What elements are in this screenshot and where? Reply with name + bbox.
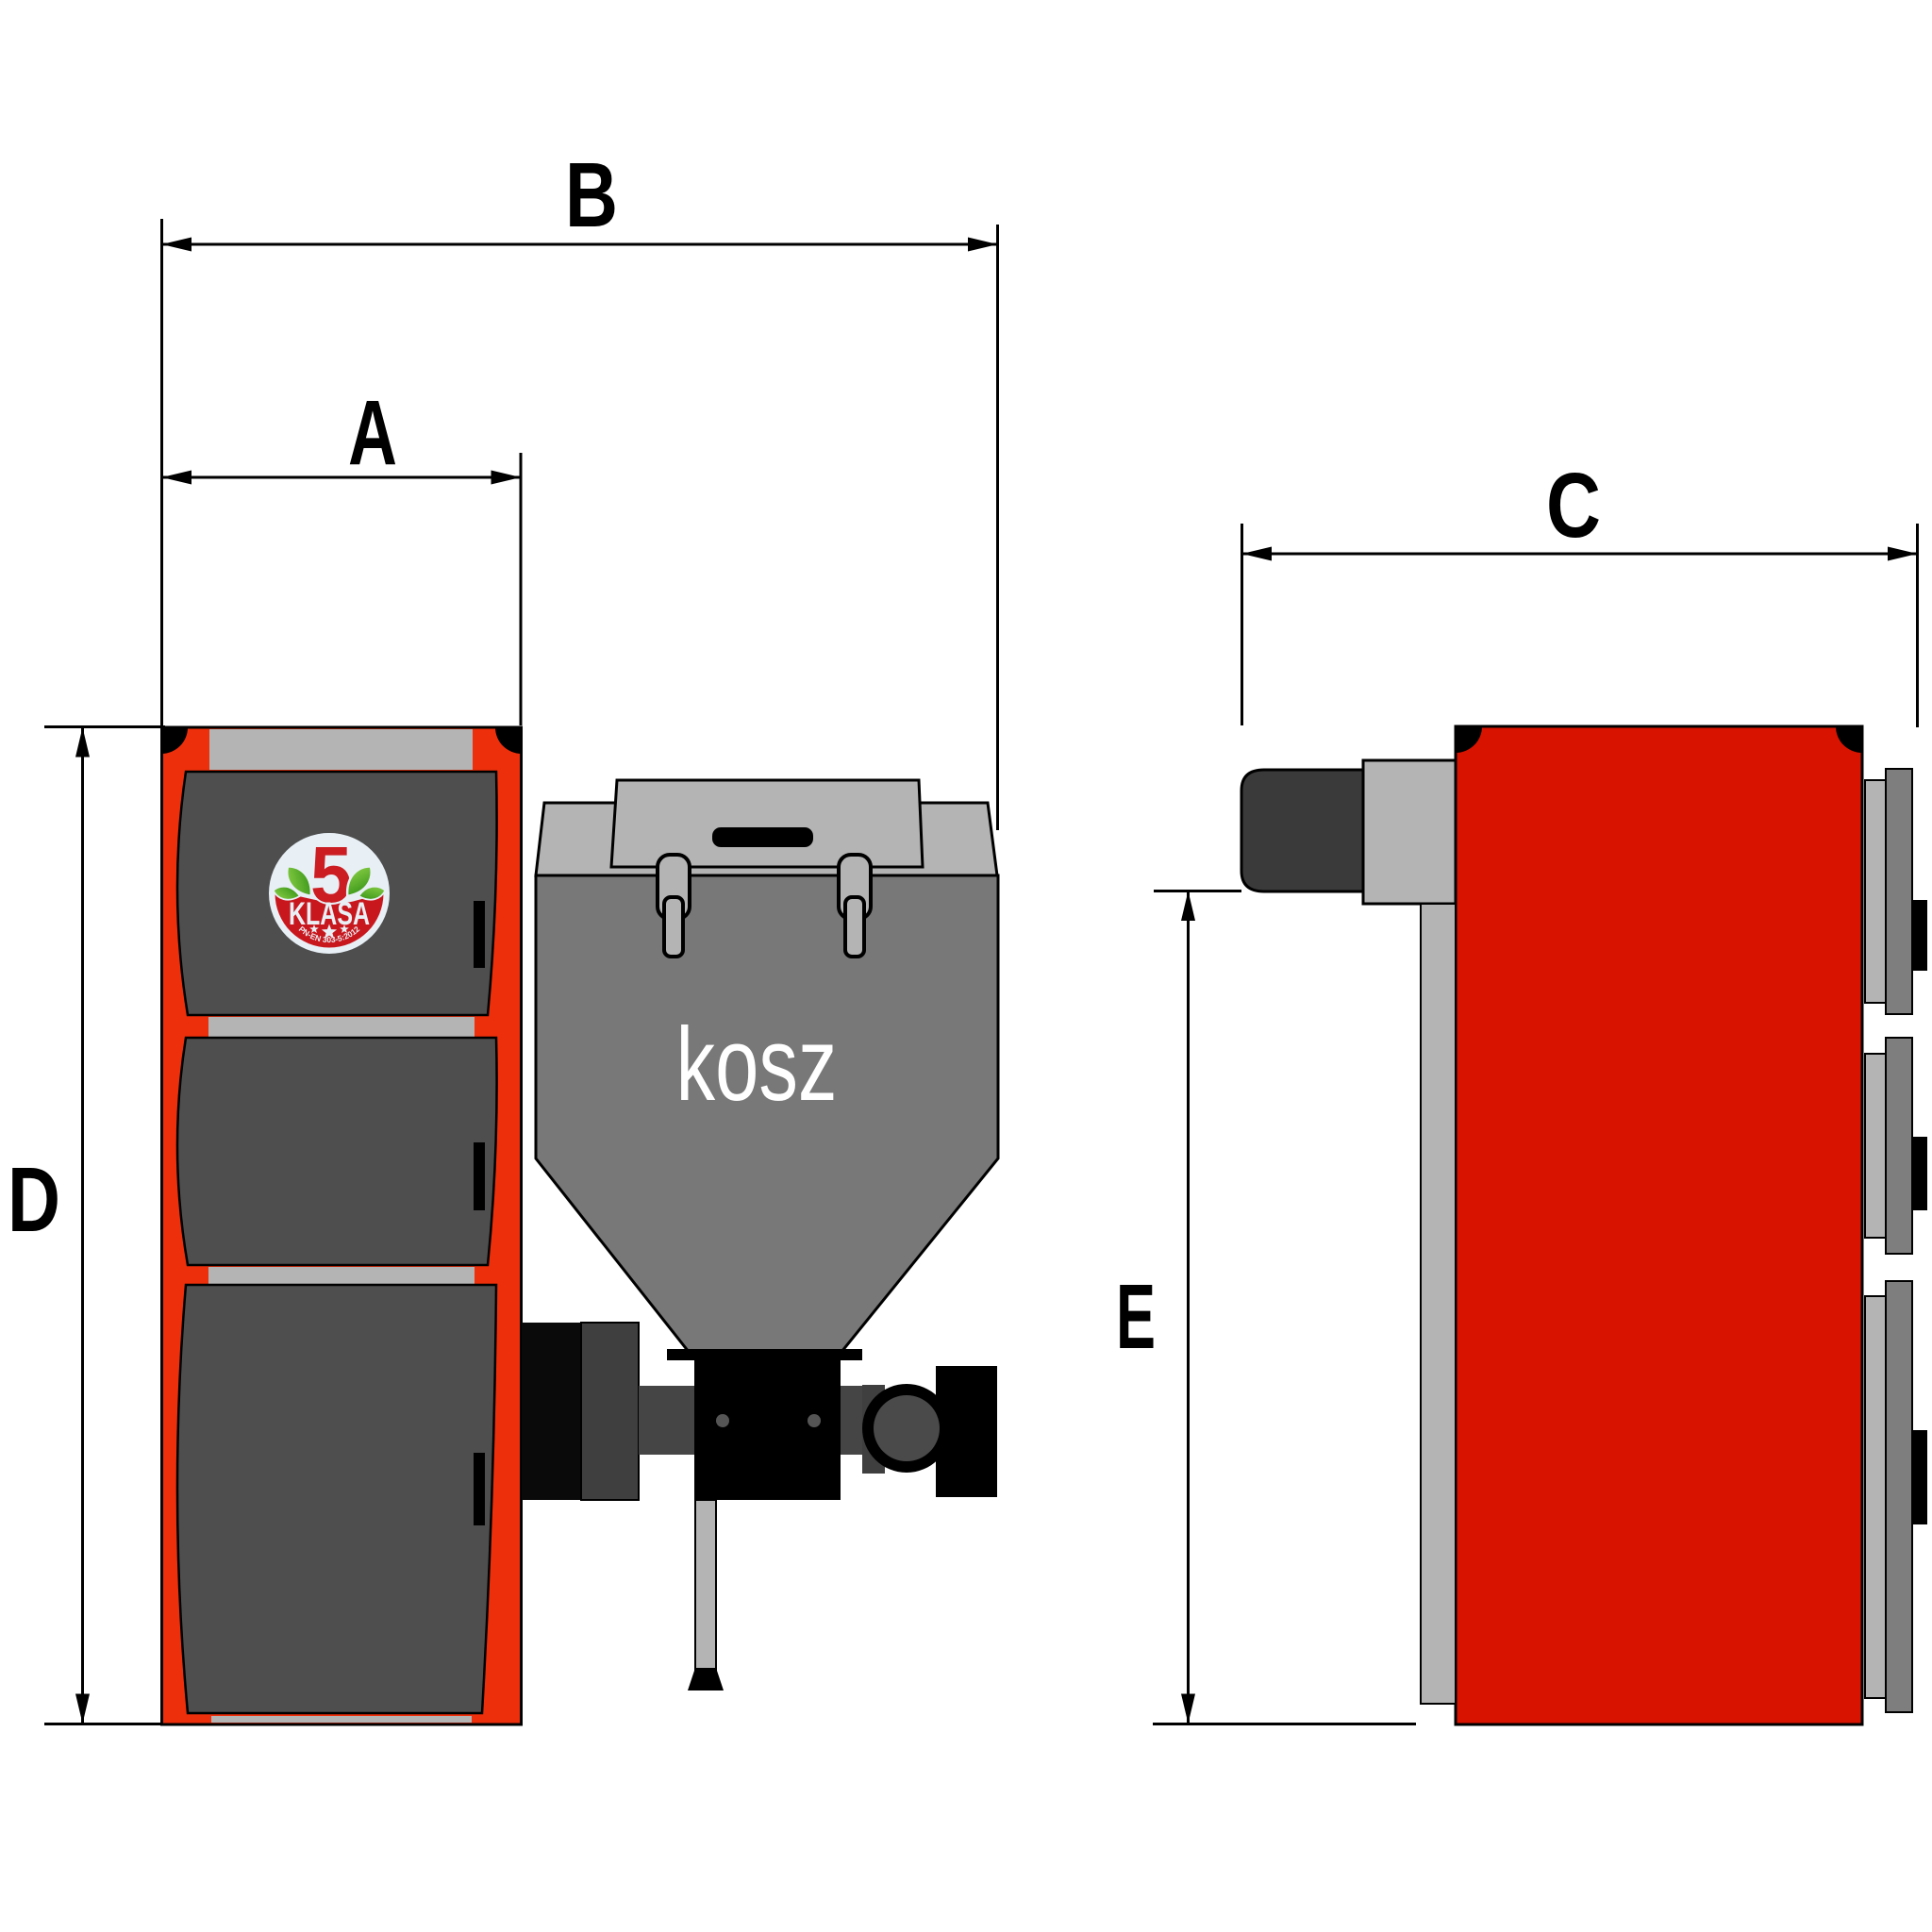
svg-text:C: C	[1546, 454, 1601, 557]
svg-text:E: E	[1116, 1265, 1156, 1368]
svg-text:D: D	[8, 1148, 60, 1251]
svg-text:A: A	[348, 381, 397, 484]
svg-text:B: B	[565, 143, 618, 246]
svg-text:kosz: kosz	[676, 1007, 838, 1123]
